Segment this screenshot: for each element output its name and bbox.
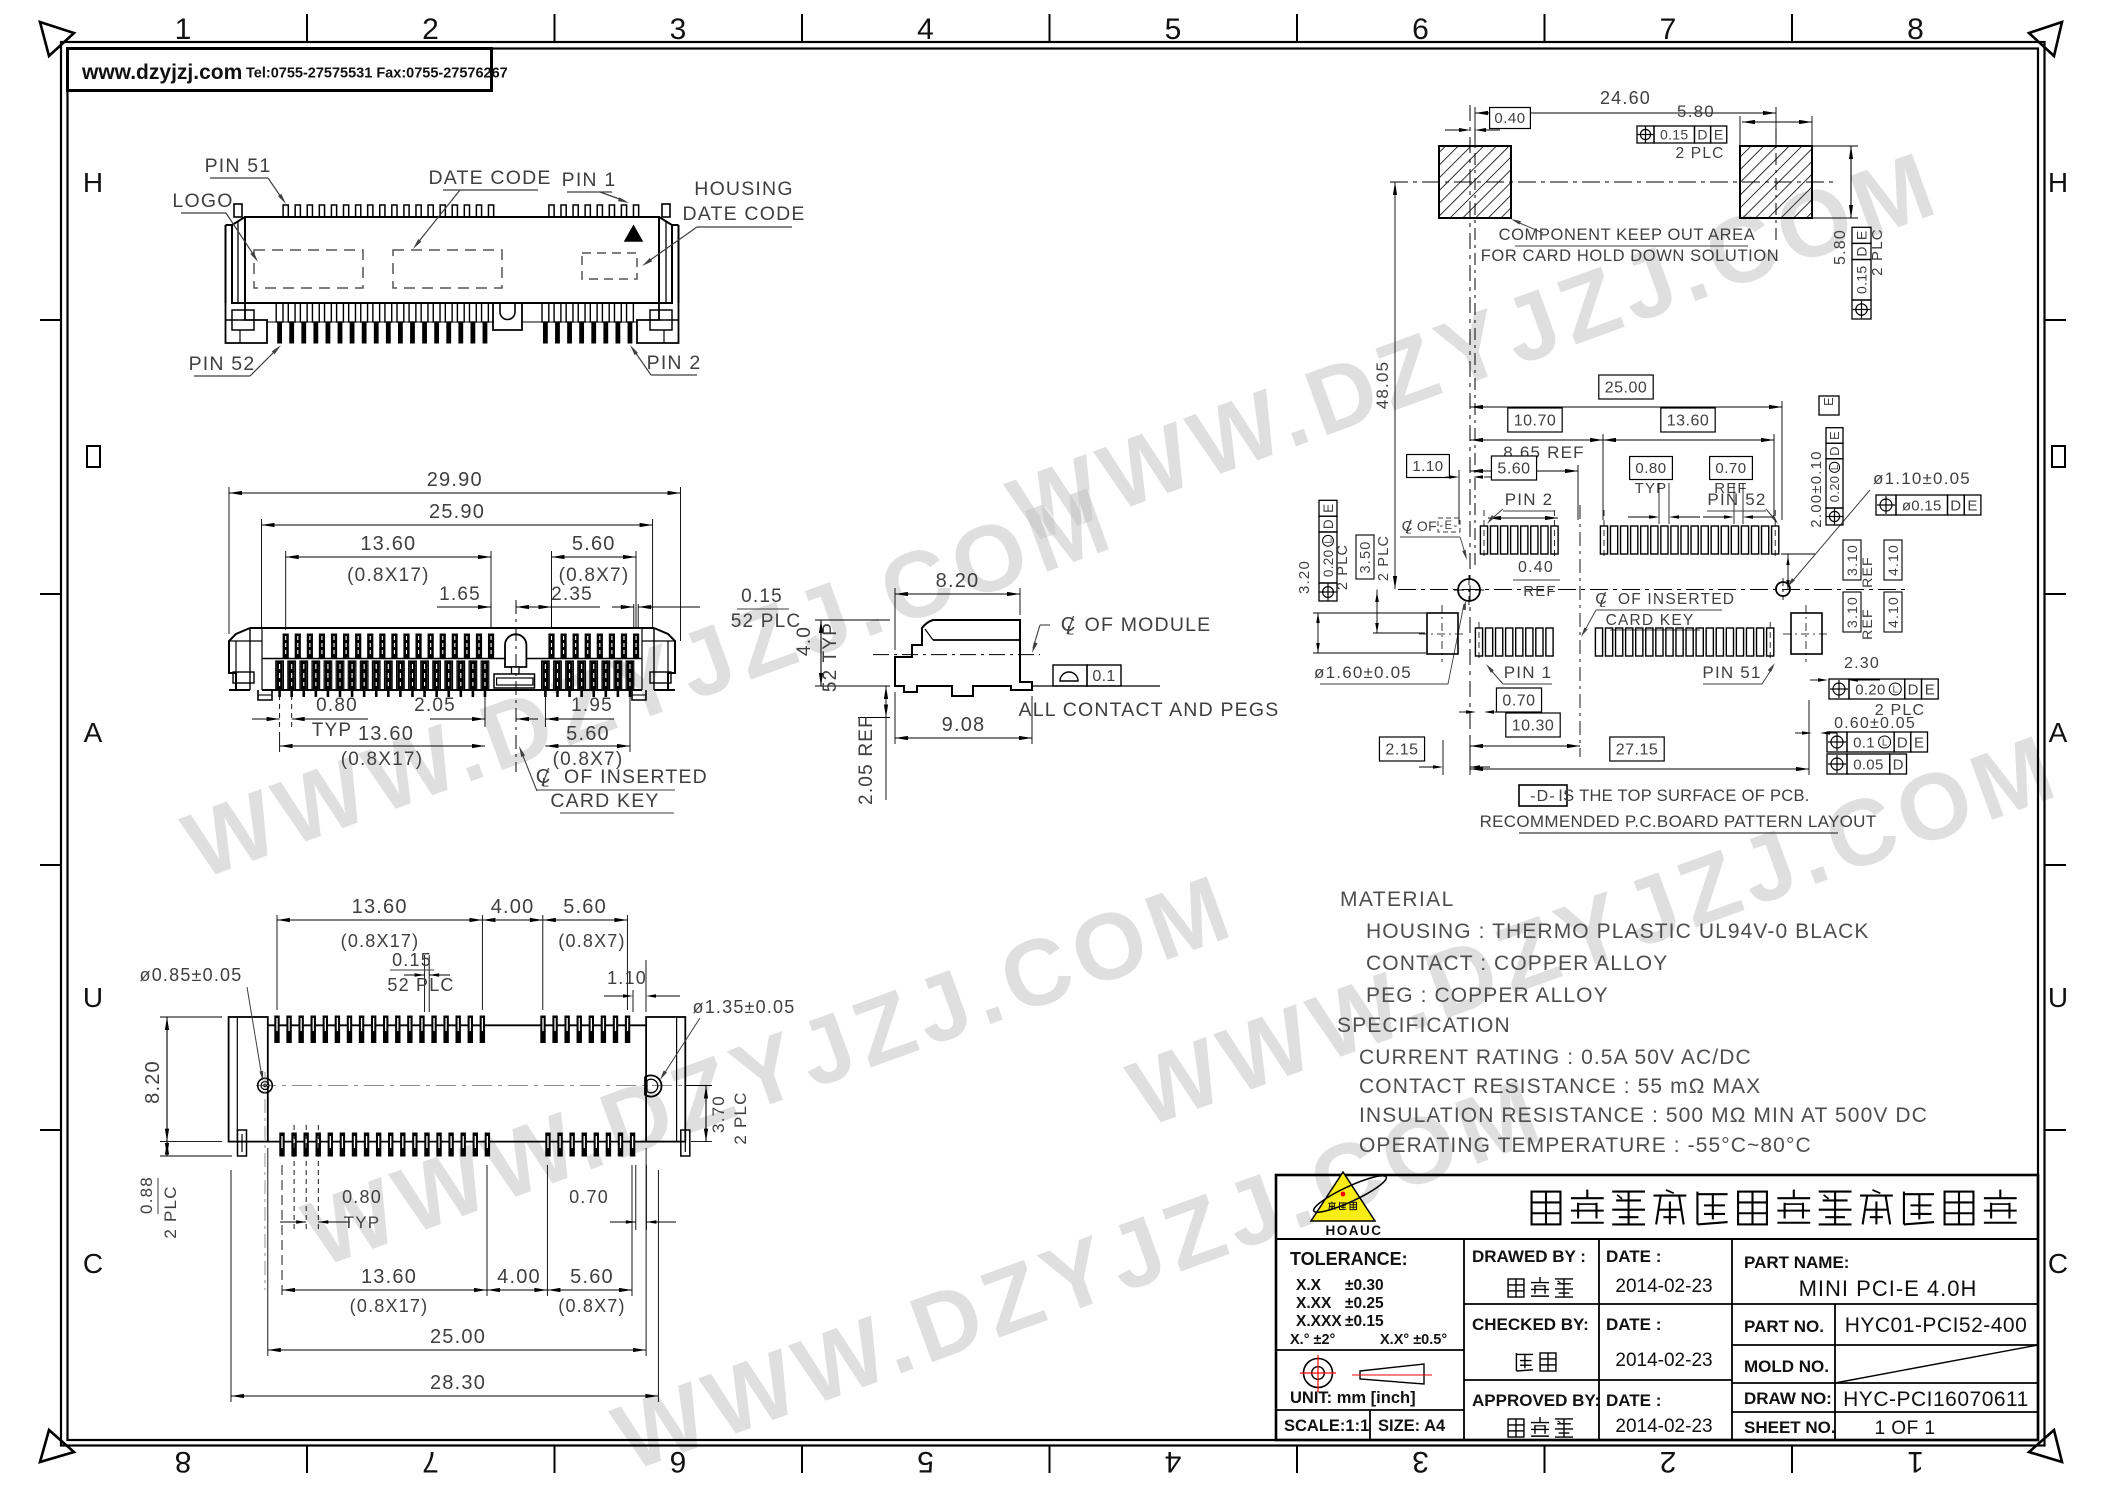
svg-text:PIN 51: PIN 51 [1702, 663, 1761, 682]
svg-text:HOUSING: HOUSING [694, 178, 793, 200]
svg-text:U: U [83, 982, 103, 1013]
svg-text:2.00±0.10: 2.00±0.10 [1808, 450, 1825, 527]
svg-text:0.80: 0.80 [1635, 460, 1666, 477]
svg-text:SHEET NO.: SHEET NO. [1744, 1418, 1836, 1437]
svg-text:5.60: 5.60 [570, 1266, 614, 1288]
svg-text:0.15: 0.15 [741, 586, 783, 607]
svg-text:E: E [1821, 396, 1836, 406]
svg-text:OF MODULE: OF MODULE [1085, 614, 1212, 636]
svg-text:X.XXX: X.XXX [1296, 1313, 1342, 1330]
svg-text:HOUSING : THERMO PLASTIC UL94V: HOUSING : THERMO PLASTIC UL94V-0 BLACK [1366, 920, 1870, 943]
svg-text:0.1: 0.1 [1092, 668, 1115, 685]
svg-text:0.40: 0.40 [1494, 110, 1525, 127]
svg-text:PEG : COPPER ALLOY: PEG : COPPER ALLOY [1366, 984, 1609, 1007]
svg-text:2.35: 2.35 [551, 584, 593, 605]
svg-text:25.90: 25.90 [429, 501, 485, 523]
svg-text:2 PLC: 2 PLC [1376, 535, 1392, 581]
svg-text:52 TYP: 52 TYP [820, 622, 841, 692]
svg-text:H: H [83, 167, 103, 198]
svg-text:3.10: 3.10 [1844, 596, 1860, 628]
svg-text:25.00: 25.00 [430, 1326, 486, 1348]
svg-text:24.60: 24.60 [1600, 88, 1651, 108]
svg-text:D: D [1908, 681, 1919, 698]
svg-text:ø0.15: ø0.15 [1902, 497, 1942, 514]
svg-text:4.0: 4.0 [794, 626, 815, 656]
svg-text:E: E [1925, 681, 1935, 698]
svg-text:1.10: 1.10 [607, 968, 647, 988]
svg-text:-D-: -D- [1530, 788, 1556, 805]
svg-text:10.30: 10.30 [1512, 717, 1555, 734]
svg-text:13.60: 13.60 [360, 533, 416, 555]
svg-text:±0.25: ±0.25 [1345, 1295, 1384, 1312]
svg-text:13.60: 13.60 [358, 723, 414, 745]
svg-text:H: H [2048, 167, 2068, 198]
svg-text:Tel:0755-27575531 Fax:0755-27: Tel:0755-27575531 Fax:0755-27576267 [246, 66, 508, 82]
svg-text:(0.8X17): (0.8X17) [350, 1296, 429, 1316]
svg-text:C: C [2048, 1248, 2068, 1279]
svg-text:SCALE:1:1: SCALE:1:1 [1284, 1417, 1369, 1435]
svg-text:0.88: 0.88 [137, 1176, 156, 1214]
svg-text:4: 4 [917, 13, 934, 46]
svg-text:OF INSERTED: OF INSERTED [564, 766, 708, 788]
svg-text:CHECKED BY:: CHECKED BY: [1472, 1315, 1589, 1334]
svg-text:0.15: 0.15 [1854, 266, 1870, 294]
svg-text:LOGO: LOGO [172, 190, 233, 212]
svg-text:1.95: 1.95 [571, 695, 613, 716]
svg-text:0.70: 0.70 [1502, 692, 1535, 709]
svg-text:3.70: 3.70 [709, 1095, 728, 1133]
svg-text:PIN 1: PIN 1 [562, 169, 617, 191]
svg-text:7: 7 [422, 1445, 439, 1478]
svg-text:9.08: 9.08 [942, 714, 986, 736]
svg-text:3.10: 3.10 [1844, 544, 1860, 576]
svg-text:ø0.85±0.05: ø0.85±0.05 [140, 965, 243, 985]
svg-text:L: L [1893, 685, 1899, 696]
svg-text:E: E [1827, 431, 1842, 440]
svg-text:DATE :: DATE : [1606, 1247, 1661, 1266]
svg-text:HYC-PCI16070611: HYC-PCI16070611 [1843, 1388, 2029, 1411]
svg-text:2 PLC: 2 PLC [161, 1185, 180, 1238]
svg-text:PIN 2: PIN 2 [647, 352, 702, 374]
svg-text:1: 1 [175, 13, 192, 46]
svg-text:TYP: TYP [344, 1213, 381, 1232]
svg-text:29.90: 29.90 [427, 469, 483, 491]
svg-text:3: 3 [670, 13, 687, 46]
svg-text:(0.8X7): (0.8X7) [559, 565, 630, 586]
svg-text:3.50: 3.50 [1358, 540, 1374, 573]
svg-text:SIZE: A4: SIZE: A4 [1378, 1417, 1446, 1435]
svg-text:28.30: 28.30 [430, 1372, 486, 1394]
svg-text:D: D [1897, 734, 1908, 751]
svg-text:±0.30: ±0.30 [1345, 1277, 1384, 1294]
svg-text:8: 8 [175, 1445, 192, 1478]
svg-text:4.00: 4.00 [491, 896, 535, 918]
svg-text:0.15: 0.15 [392, 950, 432, 970]
svg-text:0.70: 0.70 [569, 1187, 609, 1207]
svg-text:E: E [1967, 497, 1977, 514]
svg-text:13.60: 13.60 [352, 896, 408, 918]
svg-text:CARD KEY: CARD KEY [550, 790, 659, 812]
svg-text:4.00: 4.00 [497, 1266, 541, 1288]
svg-text:APPROVED BY:: APPROVED BY: [1472, 1391, 1600, 1410]
svg-text:MINI PCI-E 4.0H: MINI PCI-E 4.0H [1799, 1276, 1978, 1301]
svg-text:E: E [1321, 504, 1336, 513]
svg-text:D: D [1893, 756, 1904, 773]
svg-text:2 PLC: 2 PLC [731, 1091, 750, 1144]
svg-text:PART NO.: PART NO. [1744, 1317, 1824, 1336]
svg-text:E: E [1914, 734, 1924, 751]
svg-text:L: L [1600, 599, 1606, 610]
svg-text:CURRENT RATING : 0.5A 50V AC/D: CURRENT RATING : 0.5A 50V AC/DC [1359, 1046, 1752, 1069]
svg-text:0.60±0.05: 0.60±0.05 [1834, 715, 1916, 732]
svg-text:L: L [1406, 526, 1411, 536]
svg-text:CONTACT RESISTANCE : 55 mΩ MAX: CONTACT RESISTANCE : 55 mΩ MAX [1359, 1075, 1761, 1098]
svg-text:(0.8X17): (0.8X17) [347, 565, 429, 586]
svg-text:E: E [1854, 231, 1870, 241]
svg-text:52 PLC: 52 PLC [731, 611, 802, 632]
svg-text:D: D [1827, 446, 1842, 456]
svg-text:0.40: 0.40 [1518, 559, 1554, 576]
svg-text:TOLERANCE:: TOLERANCE: [1290, 1249, 1408, 1269]
svg-text:PIN 51: PIN 51 [205, 155, 272, 177]
svg-text:HOAUC: HOAUC [1326, 1223, 1383, 1238]
svg-text:ø1.10±0.05: ø1.10±0.05 [1873, 469, 1971, 488]
svg-text:0.05: 0.05 [1853, 756, 1883, 773]
svg-text:2: 2 [1660, 1445, 1677, 1478]
svg-text:2014-02-23: 2014-02-23 [1615, 1350, 1712, 1371]
svg-text:OF: OF [1417, 518, 1437, 534]
svg-text:5: 5 [917, 1445, 934, 1478]
svg-text:25.00: 25.00 [1605, 379, 1648, 396]
svg-text:X.X: X.X [1296, 1277, 1322, 1294]
svg-text:DATE :: DATE : [1606, 1315, 1661, 1334]
svg-text:CONTACT : COPPER ALLOY: CONTACT : COPPER ALLOY [1366, 952, 1668, 975]
svg-text:8.20: 8.20 [936, 570, 980, 592]
svg-text:DRAW NO:: DRAW NO: [1744, 1389, 1832, 1408]
svg-text:6: 6 [1412, 13, 1429, 46]
svg-text:2 PLC: 2 PLC [1335, 544, 1351, 590]
svg-text:5: 5 [1165, 13, 1182, 46]
svg-text:ø1.35±0.05: ø1.35±0.05 [693, 997, 796, 1017]
svg-text:5.60: 5.60 [563, 896, 607, 918]
svg-text:(0.8X7): (0.8X7) [558, 1296, 625, 1316]
svg-text:-E-: -E- [1440, 520, 1459, 532]
svg-text:4: 4 [1165, 1445, 1182, 1478]
svg-text:D: D [1950, 497, 1961, 514]
svg-text:CARD KEY: CARD KEY [1606, 612, 1695, 629]
svg-text:X.° ±2°: X.° ±2° [1290, 1332, 1336, 1348]
svg-text:IS THE TOP SURFACE OF PCB.: IS THE TOP SURFACE OF PCB. [1558, 787, 1809, 805]
svg-text:2.05 REF: 2.05 REF [856, 715, 877, 805]
svg-text:PIN 1: PIN 1 [1504, 663, 1553, 682]
svg-text:1.10: 1.10 [1412, 458, 1443, 475]
svg-text:27.15: 27.15 [1616, 741, 1659, 758]
svg-text:DRAWED BY :: DRAWED BY : [1472, 1247, 1586, 1266]
svg-text:1: 1 [1907, 1445, 1924, 1478]
svg-text:www.dzyjzj.com: www.dzyjzj.com [81, 61, 242, 84]
svg-text:0.20: 0.20 [1321, 550, 1336, 577]
svg-text:PIN 52: PIN 52 [189, 353, 256, 375]
svg-text:DATE :: DATE : [1606, 1391, 1661, 1410]
svg-text:4.10: 4.10 [1885, 596, 1901, 628]
svg-text:C: C [83, 1248, 103, 1279]
svg-text:L: L [1882, 738, 1888, 749]
svg-text:1 OF 1: 1 OF 1 [1874, 1418, 1935, 1439]
svg-text:MATERIAL: MATERIAL [1340, 888, 1455, 911]
svg-text:(0.8X17): (0.8X17) [341, 749, 423, 770]
svg-text:8.20: 8.20 [142, 1060, 164, 1104]
svg-text:0.1: 0.1 [1853, 734, 1875, 751]
svg-text:REF: REF [1859, 556, 1875, 588]
svg-text:13.60: 13.60 [361, 1266, 417, 1288]
svg-text:2 PLC: 2 PLC [1675, 145, 1724, 162]
svg-text:L: L [1067, 624, 1074, 638]
svg-text:L: L [1324, 538, 1335, 544]
svg-text:ø1.60±0.05: ø1.60±0.05 [1314, 663, 1412, 682]
svg-text:10.70: 10.70 [1514, 412, 1557, 429]
svg-text:INSULATION RESISTANCE : 500 MΩ: INSULATION RESISTANCE : 500 MΩ MIN AT 50… [1359, 1104, 1928, 1127]
svg-text:D: D [1854, 246, 1870, 256]
svg-text:SPECIFICATION: SPECIFICATION [1337, 1014, 1511, 1037]
svg-text:5.80: 5.80 [1677, 102, 1715, 121]
svg-text:U: U [2048, 982, 2068, 1013]
svg-text:FOR CARD HOLD DOWN SOLUTION: FOR CARD HOLD DOWN SOLUTION [1481, 247, 1780, 265]
svg-text:MOLD NO.: MOLD NO. [1744, 1357, 1829, 1376]
svg-text:PIN 2: PIN 2 [1505, 490, 1554, 509]
svg-text:D: D [1697, 127, 1707, 143]
svg-text:3.20: 3.20 [1296, 560, 1313, 594]
svg-text:0.20: 0.20 [1827, 476, 1842, 503]
svg-text:A: A [84, 717, 103, 748]
svg-text:COMPONENT KEEP OUT AREA: COMPONENT KEEP OUT AREA [1499, 226, 1756, 244]
svg-text:3: 3 [1412, 1445, 1429, 1478]
svg-text:1.65: 1.65 [439, 584, 481, 605]
svg-text:TYP: TYP [312, 720, 353, 741]
svg-text:0.80: 0.80 [316, 695, 358, 716]
svg-text:HYC01-PCI52-400: HYC01-PCI52-400 [1845, 1314, 2028, 1337]
svg-text:0.15: 0.15 [1660, 127, 1688, 143]
svg-text:L: L [1830, 464, 1841, 470]
svg-text:RECOMMENDED P.C.BOARD PATTERN: RECOMMENDED P.C.BOARD PATTERN LAYOUT [1480, 812, 1877, 831]
svg-text:DATE CODE: DATE CODE [428, 167, 551, 189]
svg-text:0.70: 0.70 [1715, 460, 1746, 477]
svg-text:2.05: 2.05 [414, 695, 456, 716]
svg-text:±0.15: ±0.15 [1345, 1313, 1384, 1330]
svg-text:A: A [2049, 717, 2068, 748]
svg-text:(0.8X7): (0.8X7) [558, 931, 625, 951]
svg-text:E: E [1714, 127, 1724, 143]
svg-text:2014-02-23: 2014-02-23 [1615, 1276, 1712, 1297]
svg-text:2 PLC: 2 PLC [1869, 228, 1886, 276]
svg-text:2.30: 2.30 [1844, 655, 1880, 672]
svg-text:5.60: 5.60 [566, 723, 610, 745]
svg-text:OF INSERTED: OF INSERTED [1618, 591, 1735, 608]
svg-text:48.05: 48.05 [1373, 361, 1392, 410]
svg-text:6: 6 [670, 1445, 687, 1478]
svg-text:L: L [542, 776, 549, 790]
svg-text:0.80: 0.80 [342, 1187, 382, 1207]
svg-text:PART NAME:: PART NAME: [1744, 1253, 1849, 1272]
svg-text:D: D [1321, 519, 1336, 529]
svg-text:X.X° ±0.5°: X.X° ±0.5° [1380, 1332, 1447, 1348]
svg-text:13.60: 13.60 [1667, 412, 1710, 429]
svg-text:X.XX: X.XX [1296, 1295, 1332, 1312]
svg-text:5.60: 5.60 [1497, 460, 1530, 477]
svg-text:5.80: 5.80 [1832, 229, 1849, 265]
svg-text:0.20: 0.20 [1855, 681, 1885, 698]
svg-text:OPERATING TEMPERATURE : -55°C~: OPERATING TEMPERATURE : -55°C~80°C [1359, 1134, 1812, 1157]
svg-text:2: 2 [422, 13, 439, 46]
svg-text:UNIT: mm [inch]: UNIT: mm [inch] [1290, 1389, 1416, 1407]
svg-text:2014-02-23: 2014-02-23 [1615, 1416, 1712, 1437]
svg-text:(0.8X17): (0.8X17) [341, 931, 420, 951]
svg-text:REF: REF [1523, 583, 1557, 600]
svg-text:2.15: 2.15 [1385, 741, 1418, 758]
svg-text:TYP: TYP [1635, 480, 1668, 497]
svg-text:5.60: 5.60 [572, 533, 616, 555]
svg-text:DATE CODE: DATE CODE [682, 203, 805, 225]
svg-text:PIN 52: PIN 52 [1707, 490, 1766, 509]
svg-text:REF: REF [1859, 608, 1875, 640]
svg-text:52 PLC: 52 PLC [387, 975, 454, 995]
svg-text:8: 8 [1907, 13, 1924, 46]
svg-text:4.10: 4.10 [1885, 544, 1901, 576]
svg-text:7: 7 [1660, 13, 1677, 46]
svg-text:ALL CONTACT AND PEGS: ALL CONTACT AND PEGS [1019, 699, 1280, 721]
